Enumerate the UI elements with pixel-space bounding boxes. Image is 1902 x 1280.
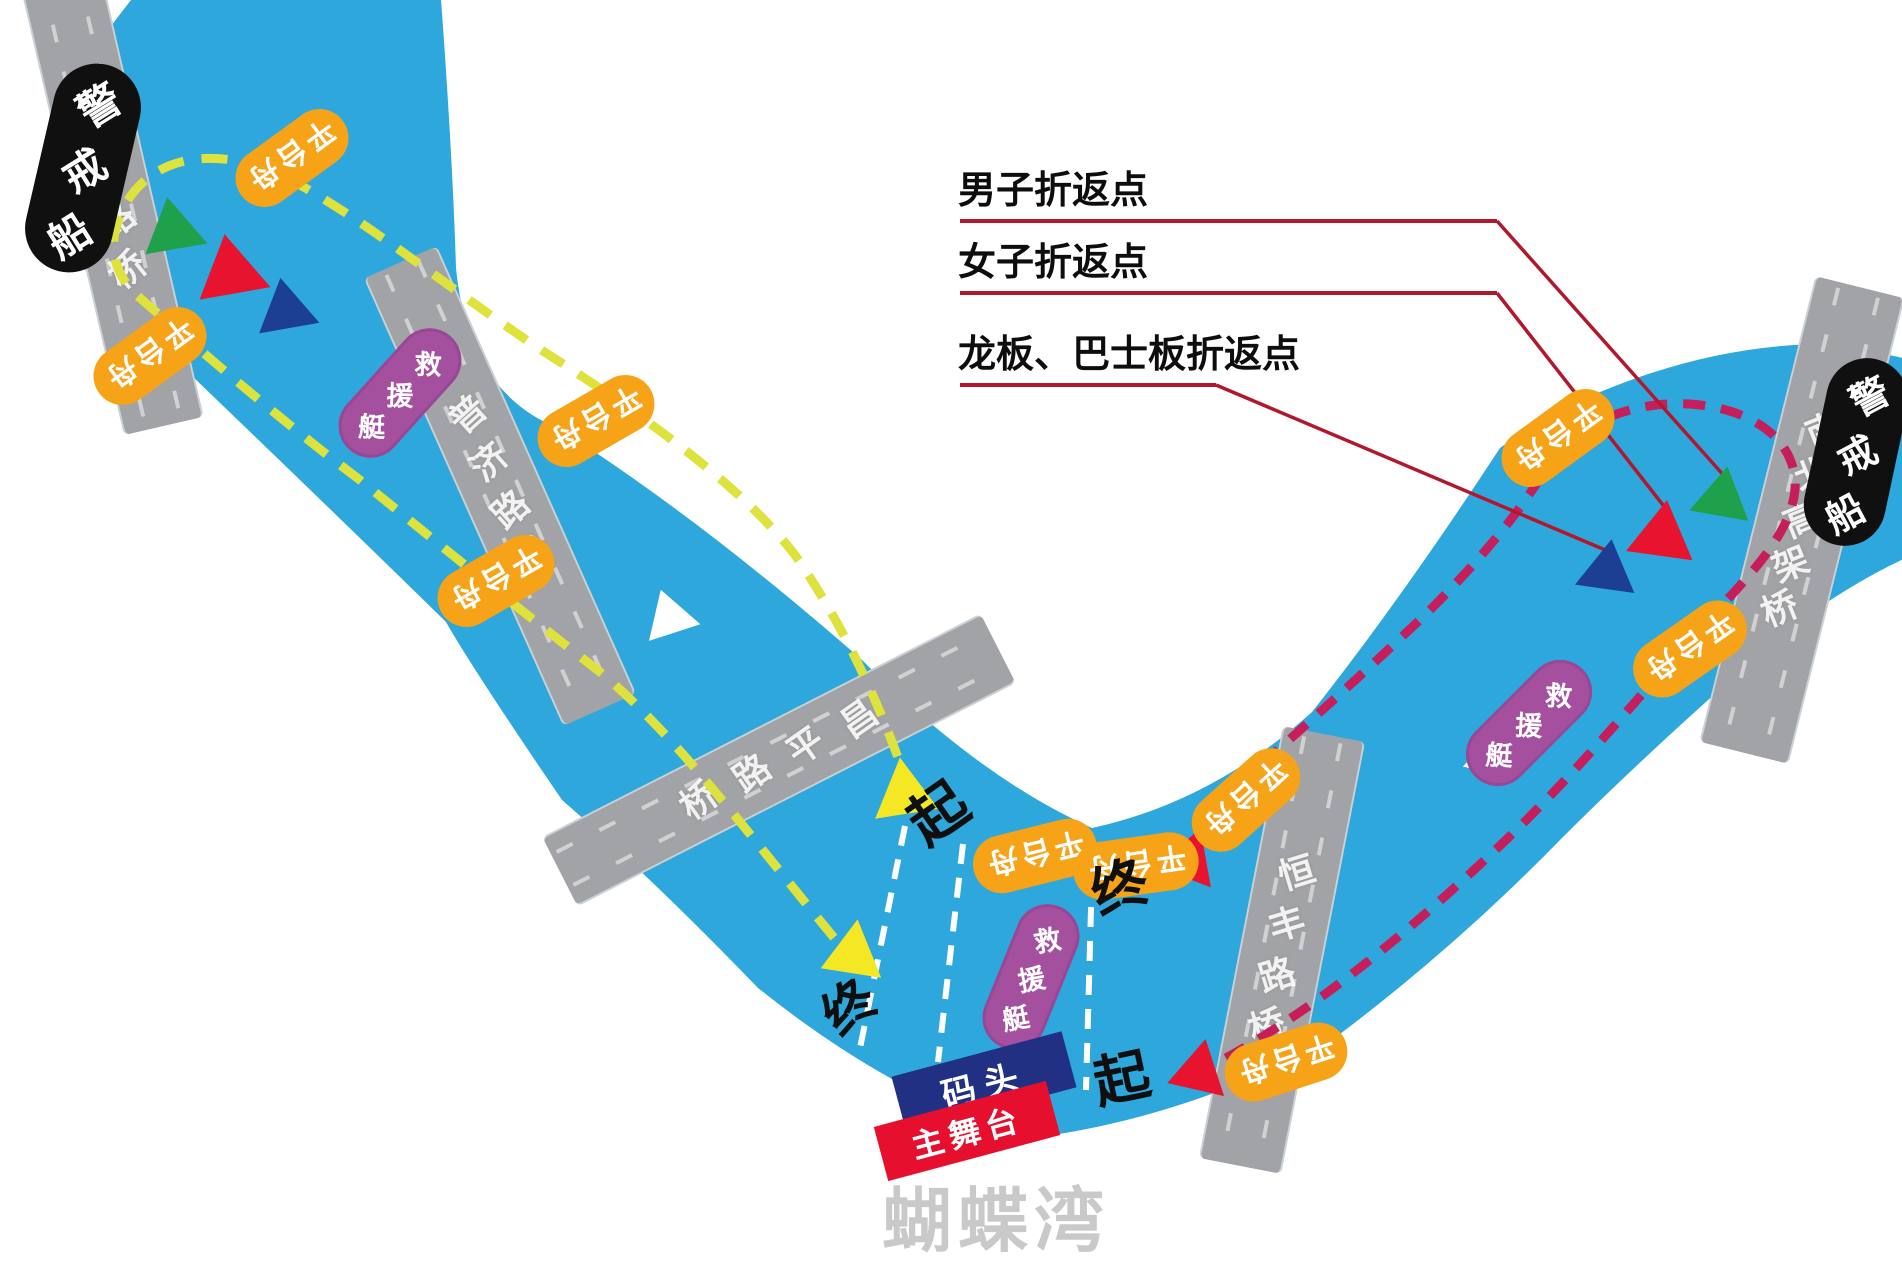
triangle-green-left bbox=[136, 192, 207, 255]
triangle-blue-right bbox=[1575, 535, 1641, 593]
triangle-green-right bbox=[1689, 461, 1757, 521]
gate-line-2 bbox=[938, 844, 963, 1062]
turnaround-label-longboard: 龙板、巴士板折返点 bbox=[958, 336, 1300, 374]
direction-triangle-left bbox=[635, 581, 700, 640]
bay-name: 蝴蝶湾 bbox=[882, 1186, 1110, 1256]
start-marker-red: 起 bbox=[1089, 1046, 1155, 1112]
red-start-triangle bbox=[1158, 1039, 1224, 1112]
course-map: 安远路桥 普济路桥 昌平路桥 恒丰路桥 南北高架桥 bbox=[0, 0, 1902, 1280]
turnaround-label-women: 女子折返点 bbox=[958, 244, 1148, 282]
turnaround-label-men: 男子折返点 bbox=[958, 172, 1148, 210]
triangle-red-right bbox=[1626, 495, 1700, 560]
